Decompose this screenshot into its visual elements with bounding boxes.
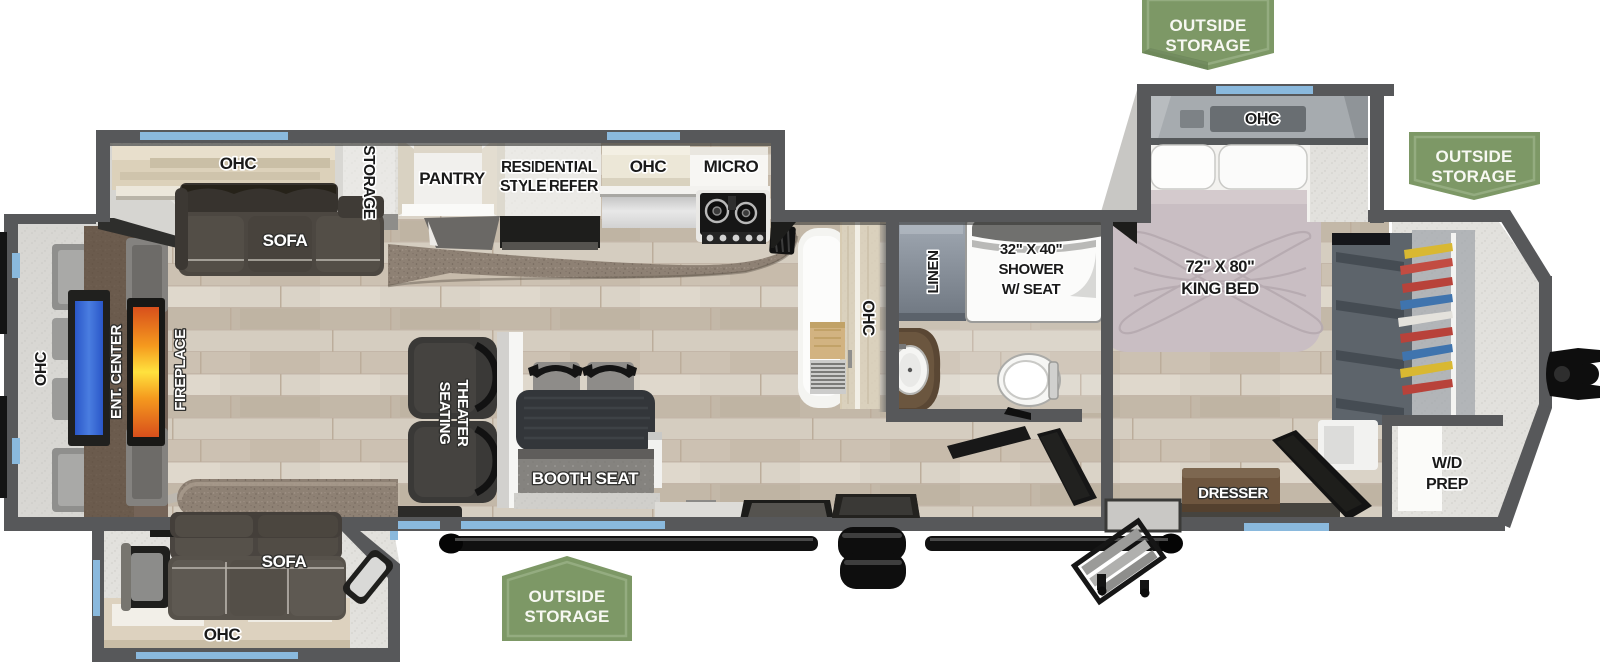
svg-text:STORAGE: STORAGE [524, 607, 609, 626]
svg-text:W/ SEAT: W/ SEAT [1002, 281, 1061, 298]
svg-text:FIREPLACE: FIREPLACE [172, 329, 189, 411]
svg-text:STORAGE: STORAGE [1165, 36, 1250, 55]
svg-text:OHC: OHC [33, 351, 50, 386]
svg-text:OHC: OHC [220, 154, 257, 173]
svg-text:OUTSIDE: OUTSIDE [1436, 147, 1513, 166]
svg-text:STORAGE: STORAGE [1431, 167, 1516, 186]
svg-text:OUTSIDE: OUTSIDE [1170, 16, 1247, 35]
svg-text:ENT. CENTER: ENT. CENTER [108, 324, 125, 419]
svg-text:OHC: OHC [204, 625, 241, 644]
svg-text:THEATER: THEATER [454, 380, 471, 447]
svg-text:OHC: OHC [859, 300, 877, 336]
svg-text:MICRO: MICRO [704, 157, 759, 176]
svg-text:32" X 40": 32" X 40" [1000, 241, 1063, 258]
svg-text:OUTSIDE: OUTSIDE [529, 587, 606, 606]
svg-text:LINEN: LINEN [925, 250, 942, 293]
svg-text:SHOWER: SHOWER [998, 261, 1064, 278]
svg-text:STORAGE: STORAGE [360, 145, 377, 219]
svg-text:SOFA: SOFA [262, 552, 307, 571]
svg-text:SOFA: SOFA [263, 231, 308, 250]
svg-text:OHC: OHC [1245, 111, 1280, 128]
svg-text:RESIDENTIAL: RESIDENTIAL [501, 159, 598, 176]
svg-text:BOOTH SEAT: BOOTH SEAT [532, 469, 639, 488]
svg-text:72" X 80": 72" X 80" [1186, 258, 1255, 276]
svg-text:PANTRY: PANTRY [419, 169, 486, 188]
svg-text:PREP: PREP [1426, 476, 1469, 493]
svg-text:DRESSER: DRESSER [1198, 485, 1268, 502]
svg-text:SEATING: SEATING [436, 382, 453, 445]
svg-text:W/D: W/D [1432, 455, 1462, 472]
svg-text:KING BED: KING BED [1181, 280, 1259, 298]
svg-text:OHC: OHC [630, 157, 667, 176]
svg-text:STYLE REFER: STYLE REFER [500, 178, 599, 195]
